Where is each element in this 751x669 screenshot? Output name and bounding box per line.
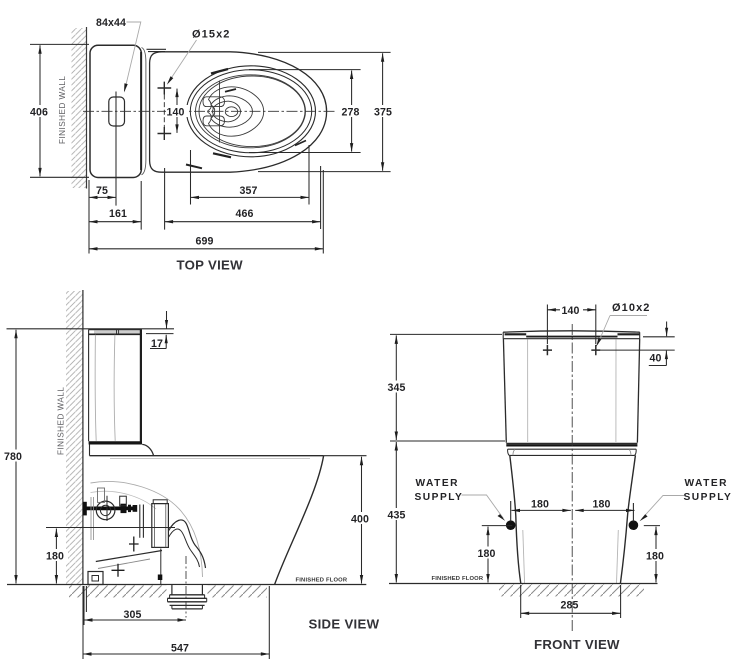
svg-text:17: 17 [151, 338, 163, 350]
svg-text:FINISHED WALL: FINISHED WALL [57, 387, 66, 455]
svg-text:699: 699 [196, 236, 214, 248]
svg-text:357: 357 [240, 185, 258, 197]
svg-text:SUPPLY: SUPPLY [415, 492, 464, 503]
svg-text:547: 547 [171, 643, 189, 655]
svg-text:WATER: WATER [685, 478, 729, 489]
svg-text:75: 75 [96, 185, 108, 197]
svg-text:40: 40 [650, 353, 662, 365]
svg-text:FRONT VIEW: FRONT VIEW [534, 637, 620, 652]
svg-text:FINISHED FLOOR: FINISHED FLOOR [432, 576, 484, 582]
svg-text:SIDE VIEW: SIDE VIEW [309, 617, 380, 632]
svg-text:FINISHED WALL: FINISHED WALL [58, 76, 67, 144]
svg-text:180: 180 [46, 550, 64, 562]
svg-text:345: 345 [388, 382, 406, 394]
svg-text:406: 406 [30, 106, 48, 118]
svg-text:180: 180 [478, 548, 496, 560]
svg-text:435: 435 [388, 509, 406, 521]
svg-text:WATER: WATER [416, 478, 460, 489]
svg-text:180: 180 [531, 499, 549, 511]
svg-text:SUPPLY: SUPPLY [684, 492, 733, 503]
svg-text:278: 278 [342, 106, 360, 118]
svg-text:161: 161 [109, 208, 127, 220]
svg-text:180: 180 [646, 550, 664, 562]
svg-text:TOP VIEW: TOP VIEW [177, 258, 244, 273]
svg-text:140: 140 [167, 106, 185, 118]
svg-text:84x44: 84x44 [96, 17, 126, 29]
svg-text:400: 400 [351, 513, 369, 525]
svg-text:Ø15x2: Ø15x2 [192, 29, 231, 41]
svg-text:FINISHED FLOOR: FINISHED FLOOR [296, 578, 348, 584]
svg-text:375: 375 [374, 106, 392, 118]
svg-text:Ø10x2: Ø10x2 [612, 302, 651, 314]
svg-text:305: 305 [124, 609, 142, 621]
svg-text:285: 285 [561, 600, 579, 612]
svg-text:466: 466 [236, 208, 254, 220]
svg-text:780: 780 [4, 451, 22, 463]
svg-text:140: 140 [562, 305, 580, 317]
svg-text:180: 180 [593, 499, 611, 511]
